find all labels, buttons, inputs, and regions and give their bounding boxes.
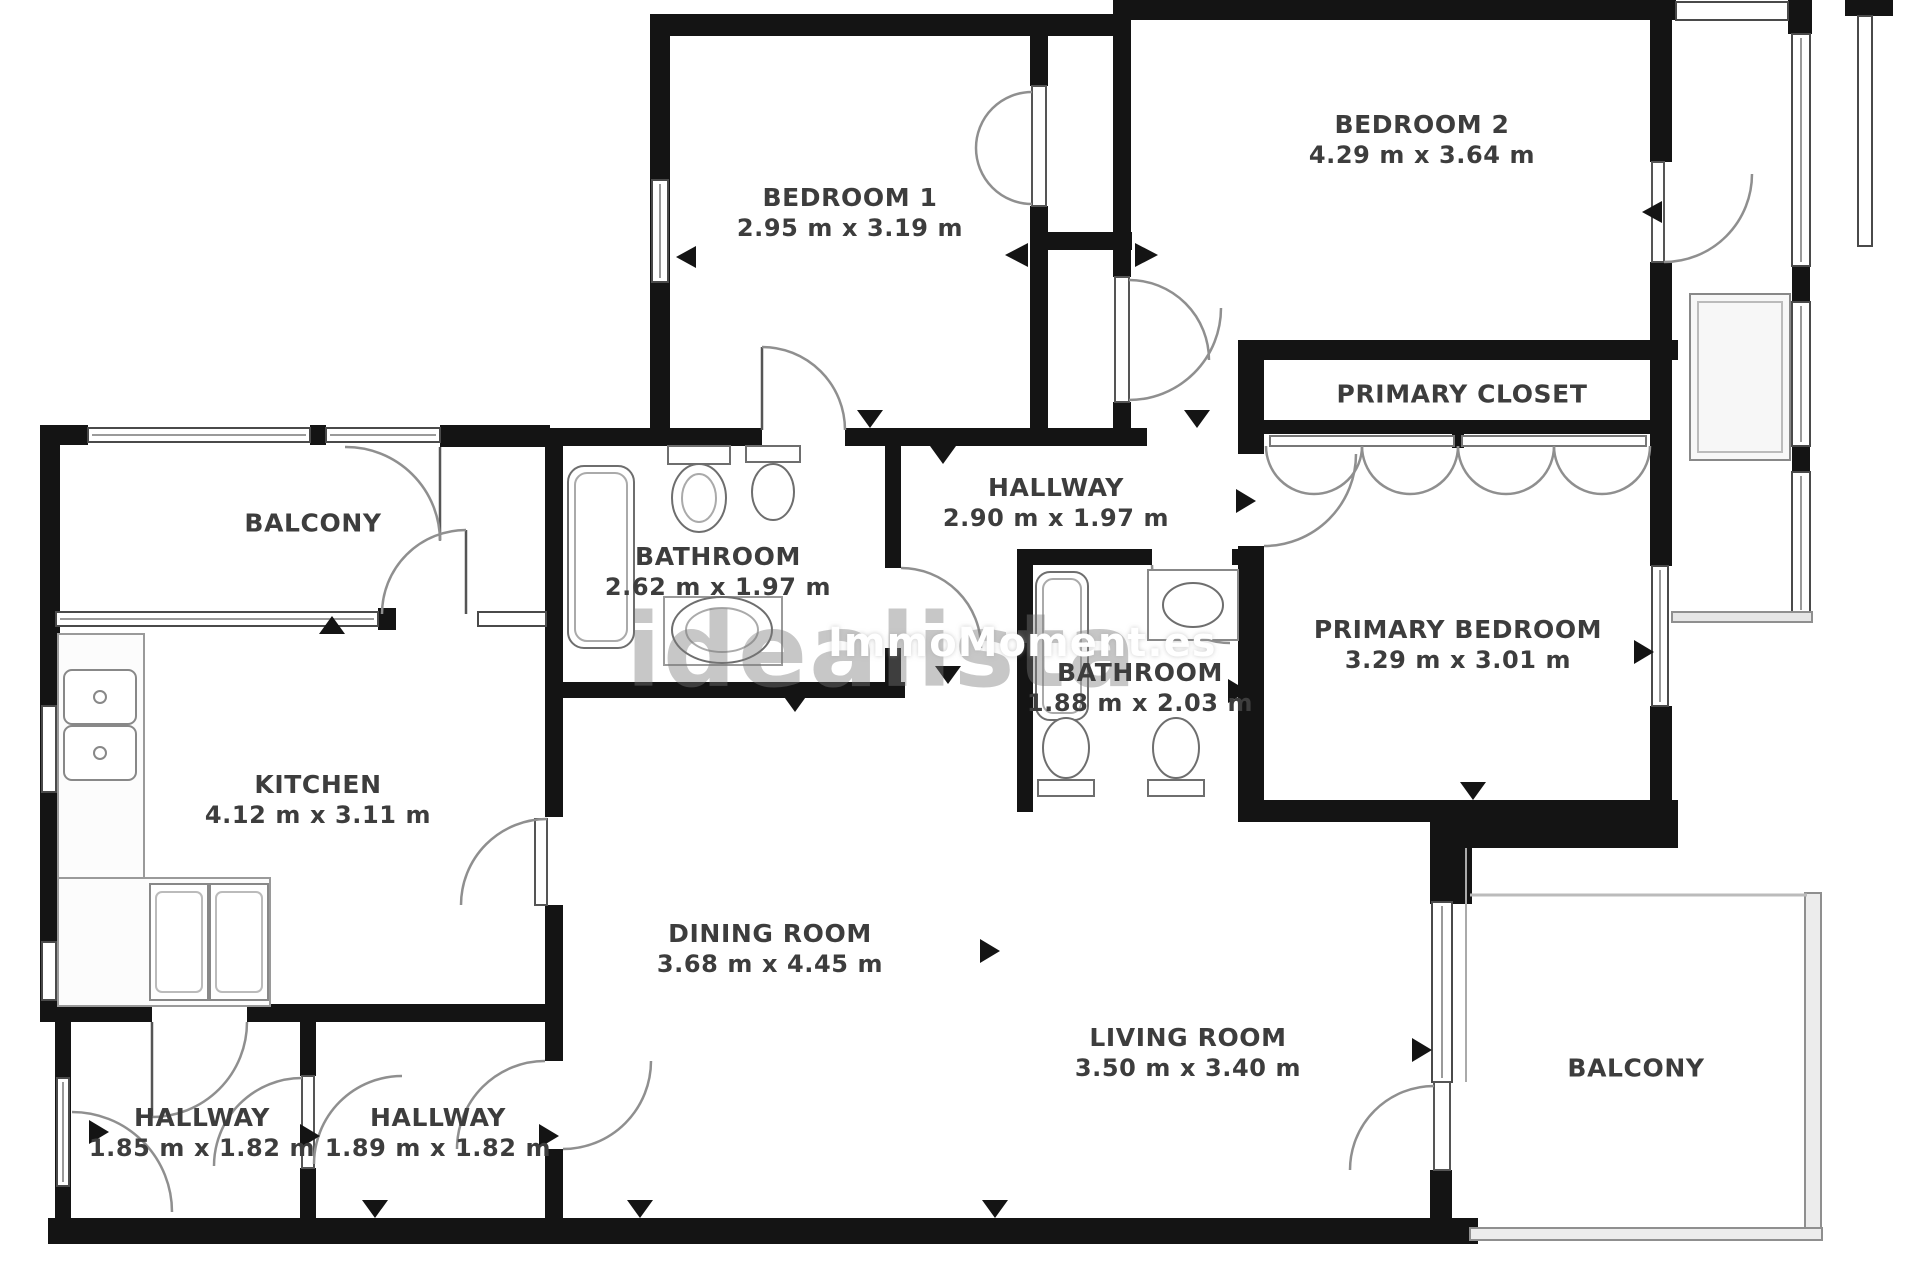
room-label-hallway-left: HALLWAY 1.85 m x 1.82 m <box>89 1102 315 1164</box>
room-label-balcony-top: BALCONY <box>244 508 381 539</box>
room-label-hallway-right: HALLWAY 1.89 m x 1.82 m <box>325 1102 551 1164</box>
wardrobe-arcs <box>1266 446 1650 494</box>
appliance-icon <box>210 884 268 1000</box>
room-label-hallway-center: HALLWAY 2.90 m x 1.97 m <box>943 472 1169 534</box>
room-label-kitchen: KITCHEN 4.12 m x 3.11 m <box>205 769 431 831</box>
room-label-bathroom-main: BATHROOM 2.62 m x 1.97 m <box>605 541 831 603</box>
sink-icon <box>1163 583 1223 627</box>
room-label-living-room: LIVING ROOM 3.50 m x 3.40 m <box>1075 1022 1301 1084</box>
room-label-bathroom-ensuite: BATHROOM 1.88 m x 2.03 m <box>1027 657 1253 719</box>
appliance-icon <box>150 884 208 1000</box>
room-label-balcony-bottom: BALCONY <box>1567 1053 1704 1084</box>
room-label-bedroom-1: BEDROOM 1 2.95 m x 3.19 m <box>737 182 963 244</box>
bidet-icon <box>746 446 800 462</box>
room-label-dining-room: DINING ROOM 3.68 m x 4.45 m <box>657 918 883 980</box>
planter-box <box>1690 294 1790 460</box>
toilet-icon <box>1038 780 1094 796</box>
floor-plan-page: idealista ImmoMoment.es BEDROOM 2 4.29 m… <box>0 0 1920 1280</box>
toilet-icon <box>668 446 730 464</box>
room-label-bedroom-2: BEDROOM 2 4.29 m x 3.64 m <box>1309 109 1535 171</box>
room-label-primary-bedroom: PRIMARY BEDROOM 3.29 m x 3.01 m <box>1314 614 1602 676</box>
room-label-primary-closet: PRIMARY CLOSET <box>1337 379 1588 410</box>
bidet-icon <box>1148 780 1204 796</box>
